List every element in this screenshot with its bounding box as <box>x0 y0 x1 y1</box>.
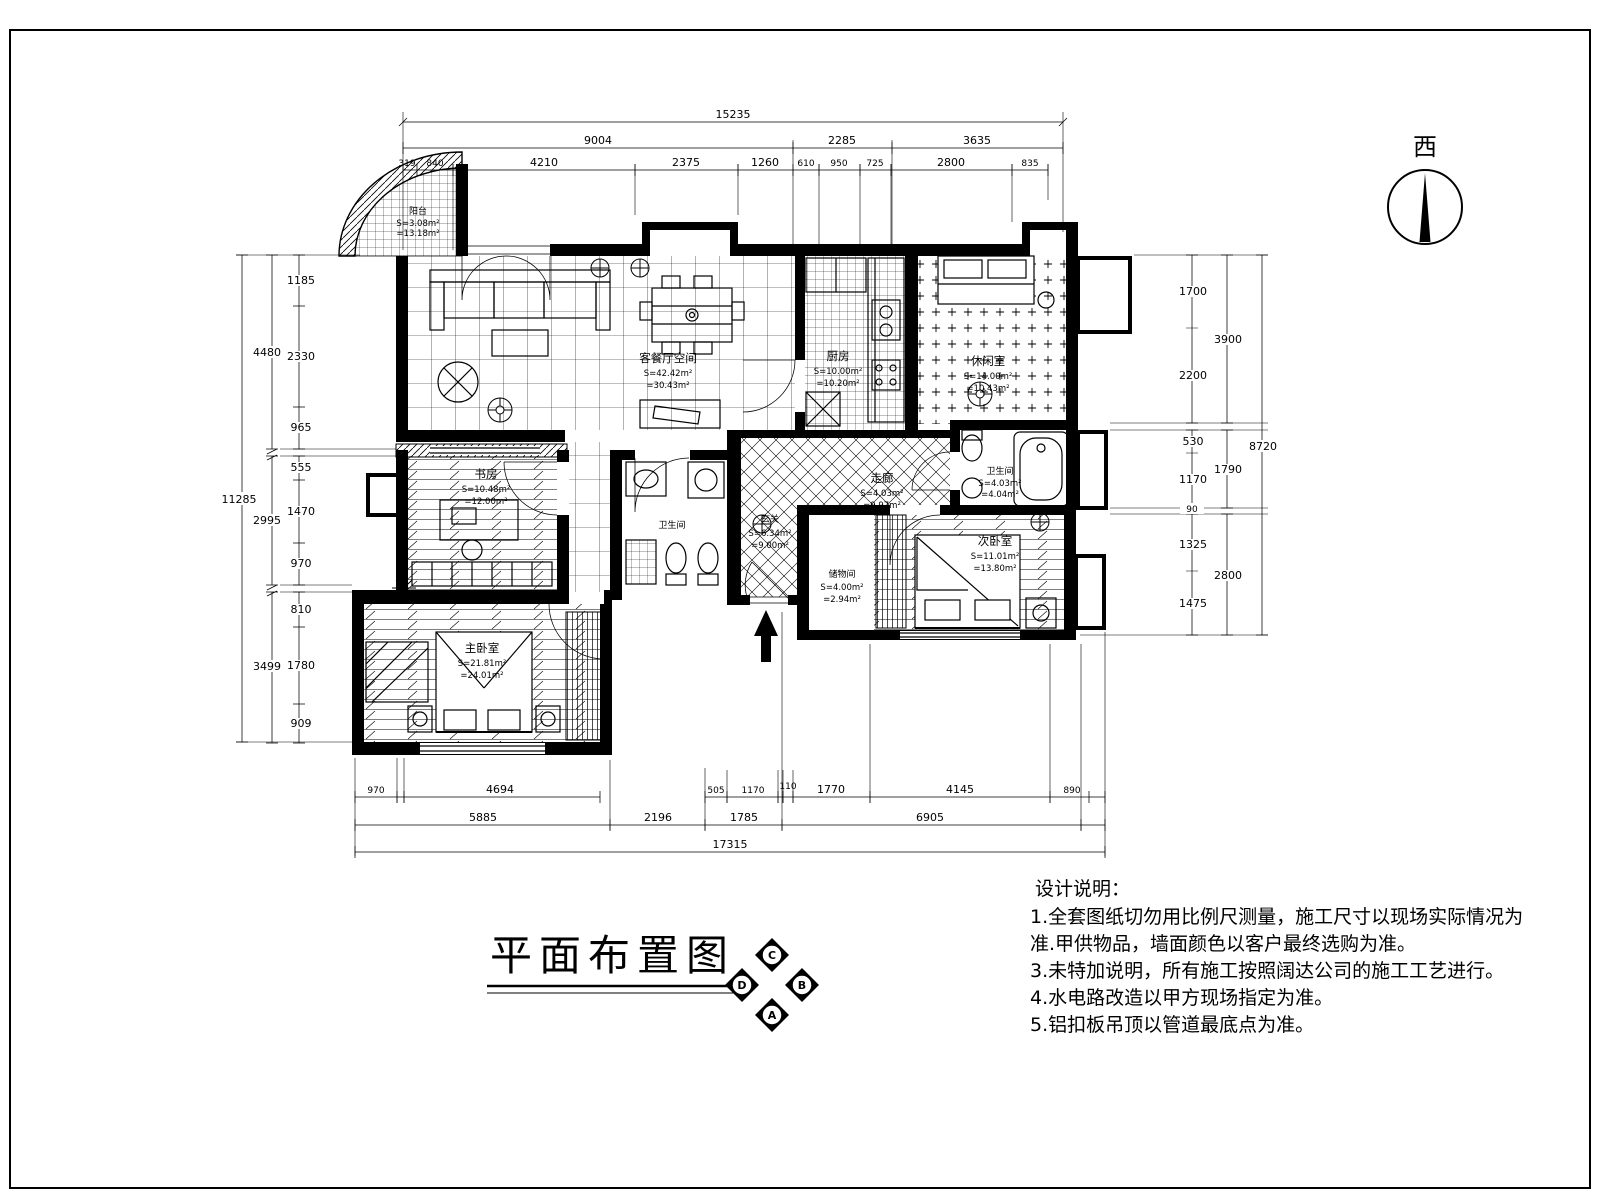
room-label-kitchen: 厨房 <box>827 349 850 363</box>
svg-text:1260: 1260 <box>751 156 779 169</box>
svg-text:4694: 4694 <box>486 783 514 796</box>
svg-text:=12.00m²: =12.00m² <box>464 497 507 507</box>
svg-text:S=14.00m²: S=14.00m² <box>964 372 1013 382</box>
svg-text:725: 725 <box>866 159 883 169</box>
svg-text:S=4.00m²: S=4.00m² <box>820 583 863 593</box>
svg-text:2375: 2375 <box>672 156 700 169</box>
svg-text:909: 909 <box>291 717 312 730</box>
svg-text:2285: 2285 <box>828 134 856 147</box>
floor-plan: 阳台 S=3.08m² =13.18m² 客餐厅空间 S=42.42m² =30… <box>339 152 1130 755</box>
svg-text:890: 890 <box>1063 786 1080 796</box>
room-label-study: 书房 <box>475 467 498 481</box>
svg-text:4210: 4210 <box>530 156 558 169</box>
master-wardrobe <box>566 612 604 740</box>
badge-letter-left: D <box>737 979 746 992</box>
svg-text:1325: 1325 <box>1179 538 1207 551</box>
svg-text:1780: 1780 <box>287 659 315 672</box>
svg-text:=24.01m²: =24.01m² <box>460 671 503 681</box>
svg-text:S=21.81m²: S=21.81m² <box>458 659 507 669</box>
svg-text:3499: 3499 <box>253 660 281 673</box>
svg-text:S=4.03m²: S=4.03m² <box>978 479 1021 489</box>
svg-text:5885: 5885 <box>469 811 497 824</box>
ceiling-lamp-icon <box>1031 513 1049 531</box>
compass: 西 <box>1388 133 1462 244</box>
svg-text:1475: 1475 <box>1179 597 1207 610</box>
badge-letter-right: B <box>798 979 806 992</box>
drawing-title: 平面布置图 <box>490 931 735 980</box>
svg-text:9004: 9004 <box>584 134 612 147</box>
notes-line: 准.甲供物品，墙面颜色以客户最终选购为准。 <box>1030 933 1416 955</box>
svg-text:=4.04m²: =4.04m² <box>981 490 1019 500</box>
svg-text:4480: 4480 <box>253 346 281 359</box>
drawing-sheet: 阳台 S=3.08m² =13.18m² 客餐厅空间 S=42.42m² =30… <box>0 0 1600 1200</box>
svg-text:1790: 1790 <box>1214 463 1242 476</box>
svg-text:=30.43m²: =30.43m² <box>646 381 689 391</box>
room-label-storage: 储物间 <box>828 568 855 580</box>
svg-text:6905: 6905 <box>916 811 944 824</box>
svg-text:2330: 2330 <box>287 350 315 363</box>
svg-text:505: 505 <box>707 786 724 796</box>
svg-text:840: 840 <box>426 159 443 169</box>
svg-text:8720: 8720 <box>1249 440 1277 453</box>
room-label-bath-right: 卫生间 <box>986 465 1013 477</box>
svg-text:970: 970 <box>291 557 312 570</box>
svg-text:610: 610 <box>797 159 814 169</box>
svg-text:1785: 1785 <box>730 811 758 824</box>
svg-text:=9.00m²: =9.00m² <box>751 541 789 551</box>
room-label-bath-center: 卫生间 <box>658 519 685 531</box>
svg-text:1700: 1700 <box>1179 285 1207 298</box>
svg-text:810: 810 <box>291 603 312 616</box>
compass-needle-icon <box>1420 173 1431 242</box>
room-label-entry: 玄关 <box>761 513 779 525</box>
compass-west-label: 西 <box>1413 133 1437 161</box>
title-block: 平面布置图 C B A D <box>487 931 819 1032</box>
svg-text:2800: 2800 <box>937 156 965 169</box>
svg-text:835: 835 <box>1021 159 1038 169</box>
wardrobe2 <box>876 515 906 628</box>
balcony-right-wall <box>456 164 468 256</box>
svg-text:=10.43m²: =10.43m² <box>966 384 1009 394</box>
svg-text:17315: 17315 <box>713 838 748 851</box>
svg-text:1770: 1770 <box>817 783 845 796</box>
room-label-corridor: 走廊 <box>871 471 894 485</box>
svg-text:1170: 1170 <box>742 786 765 796</box>
svg-text:=10.20m²: =10.20m² <box>816 379 859 389</box>
svg-text:90: 90 <box>1186 505 1198 515</box>
badge-letter-top: C <box>768 949 776 962</box>
notes-line: 4.水电路改造以甲方现场指定为准。 <box>1030 987 1333 1009</box>
notes-line: 3.未特加说明，所有施工按照阔达公司的施工工艺进行。 <box>1030 960 1504 982</box>
room-label-balcony: 阳台 <box>409 205 427 217</box>
svg-text:1185: 1185 <box>287 274 315 287</box>
ceiling-lamp-icon <box>631 259 649 277</box>
notes-line: 5.铝扣板吊顶以管道最底点为准。 <box>1030 1014 1314 1036</box>
design-notes: 设计说明： 1.全套图纸切勿用比例尺测量，施工尺寸以现场实际情况为 准.甲供物品… <box>1030 878 1523 1036</box>
floorplan-canvas: 阳台 S=3.08m² =13.18m² 客餐厅空间 S=42.42m² =30… <box>0 0 1600 1200</box>
svg-text:110: 110 <box>779 782 796 792</box>
direction-badge: C B A D <box>725 938 819 1032</box>
svg-text:4145: 4145 <box>946 783 974 796</box>
svg-text:3635: 3635 <box>963 134 991 147</box>
svg-text:S=10.00m²: S=10.00m² <box>814 367 863 377</box>
svg-text:S=11.01m²: S=11.01m² <box>971 552 1020 562</box>
svg-text:530: 530 <box>1183 435 1204 448</box>
svg-text:=13.80m²: =13.80m² <box>973 564 1016 574</box>
svg-text:=2.94m²: =2.94m² <box>823 595 861 605</box>
svg-text:2196: 2196 <box>644 811 672 824</box>
notes-line: 1.全套图纸切勿用比例尺测量，施工尺寸以现场实际情况为 <box>1030 906 1523 928</box>
svg-text:=9.97m²: =9.97m² <box>863 501 901 511</box>
svg-text:S=6.34m²: S=6.34m² <box>748 529 791 539</box>
svg-text:970: 970 <box>367 786 384 796</box>
room-label-leisure: 休闲室 <box>971 354 1006 368</box>
corridor-floor <box>741 438 950 505</box>
room-label-living: 客餐厅空间 <box>639 351 697 365</box>
svg-text:1170: 1170 <box>1179 473 1207 486</box>
entrance-arrow-icon <box>754 610 778 662</box>
svg-text:S=42.42m²: S=42.42m² <box>644 369 693 379</box>
svg-text:15235: 15235 <box>716 108 751 121</box>
notes-heading: 设计说明： <box>1035 878 1130 900</box>
svg-text:965: 965 <box>291 421 312 434</box>
room-label-master: 主卧室 <box>465 641 500 655</box>
svg-text:555: 555 <box>291 461 312 474</box>
svg-text:S=10.48m²: S=10.48m² <box>462 485 511 495</box>
ceiling-lamp-icon <box>591 259 609 277</box>
svg-text:11285: 11285 <box>222 493 257 506</box>
svg-text:319: 319 <box>398 159 415 169</box>
svg-text:950: 950 <box>830 159 847 169</box>
kitchen-floor <box>805 256 905 430</box>
badge-letter-bottom: A <box>768 1009 777 1022</box>
room-label-bedroom2: 次卧室 <box>978 534 1013 548</box>
svg-text:3900: 3900 <box>1214 333 1242 346</box>
svg-text:2995: 2995 <box>253 514 281 527</box>
hall-strip-floor <box>569 442 610 592</box>
svg-text:2800: 2800 <box>1214 569 1242 582</box>
svg-text:2200: 2200 <box>1179 369 1207 382</box>
svg-text:S=4.03m²: S=4.03m² <box>860 489 903 499</box>
svg-text:1470: 1470 <box>287 505 315 518</box>
